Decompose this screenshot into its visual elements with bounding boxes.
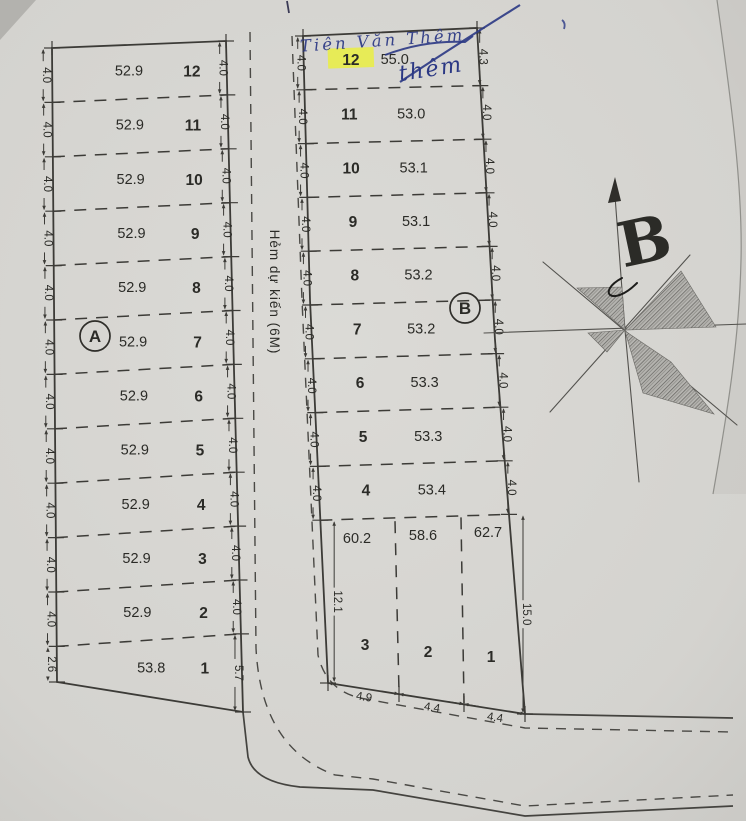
plot-area-label: 52.9 [117, 172, 145, 188]
plot-area-label: 52.9 [121, 443, 149, 459]
plot-area-label: 53.1 [400, 160, 428, 176]
dimension-label: 4.0 [298, 163, 310, 179]
dimension-label: 4.0 [221, 222, 233, 238]
dimension-label: 4.0 [229, 545, 241, 561]
scanned-survey-page: Hẻm dự kiến (6M) A B 52.91252.91152.9105… [0, 0, 746, 821]
dimension-label: 4.0 [483, 158, 495, 174]
plot-number: 7 [353, 321, 362, 338]
dimension-label: 4.0 [42, 285, 54, 301]
plot-area-label: 53.0 [397, 107, 425, 123]
dimension-label: 4.0 [44, 557, 56, 573]
dimension-label: 4.0 [43, 394, 55, 410]
dimension-label: 4.0 [227, 491, 239, 507]
dimension-label: 4.0 [219, 168, 231, 184]
plot-number: 5 [359, 429, 368, 446]
block-b-label: B [459, 299, 471, 318]
dimension-label: 4.0 [310, 485, 322, 501]
plot-number: 4 [362, 482, 371, 499]
plot-area-label: 58.6 [409, 528, 437, 544]
plot-number: 9 [191, 226, 200, 243]
dimension-label: 4.0 [299, 216, 311, 232]
dimension-label: 4.0 [305, 378, 317, 394]
dimension-label: 15.0 [520, 603, 532, 625]
plot-area-label: 53.1 [402, 214, 430, 230]
dimension-label: 4.0 [296, 109, 308, 125]
dimension-label: 4.0 [44, 502, 56, 518]
dimension-label: 4.0 [302, 324, 314, 340]
plot-number: 6 [194, 388, 203, 405]
plot-number: 10 [185, 172, 202, 189]
plot-area-label: 53.3 [414, 429, 442, 445]
dimension-label: 4.0 [223, 329, 235, 345]
paper [0, 0, 746, 821]
dimension-label: 4.0 [489, 265, 501, 281]
dimension-label: 4.0 [225, 383, 237, 399]
dimension-label: 4.0 [226, 437, 238, 453]
plot-number: 11 [341, 107, 358, 124]
plot-area-label: 60.2 [343, 531, 371, 547]
dimension-label: 4.0 [40, 67, 52, 83]
dimension-label: 4.4 [423, 701, 441, 715]
plot-number: 3 [361, 637, 370, 654]
dimension-label: 4.3 [477, 49, 489, 65]
dimension-label: 4.0 [295, 55, 307, 71]
plot-area-label: 52.9 [120, 388, 148, 404]
plot-area-label: 52.9 [123, 605, 151, 621]
dimension-label: 4.0 [308, 432, 320, 448]
plot-number: 10 [343, 160, 360, 177]
plot-number: 8 [351, 268, 360, 285]
dimension-label: 4.0 [505, 480, 517, 496]
plot-area-label: 52.9 [122, 497, 150, 513]
plot-number: 7 [193, 334, 202, 351]
dimension-label: 4.0 [42, 339, 54, 355]
dimension-label: 4.0 [300, 270, 312, 286]
dimension-label: 4.4 [486, 711, 504, 725]
dimension-label: 4.0 [217, 60, 229, 76]
dimension-label: 4.0 [222, 276, 234, 292]
plot-area-label: 53.4 [418, 482, 446, 498]
plot-area-label: 52.9 [115, 64, 143, 80]
dimension-label: 4.0 [501, 426, 513, 442]
alley-label: Hẻm dự kiến (6M) [267, 230, 282, 355]
dimension-label: 4.0 [41, 122, 53, 138]
plot-area-label: 62.7 [474, 525, 502, 541]
plot-area-label: 53.2 [407, 321, 435, 337]
plot-area-label: 52.9 [116, 118, 144, 134]
dimension-label: 4.0 [42, 230, 54, 246]
plot-number: 4 [197, 497, 206, 514]
plot-area-label: 52.9 [117, 226, 145, 242]
plot-number: 2 [199, 605, 208, 622]
dimension-label: 2.6 [45, 656, 57, 672]
plot-number: 8 [192, 280, 201, 297]
plot-area-label: 53.2 [404, 268, 432, 284]
plot-number: 12 [183, 64, 200, 81]
plot-number: 6 [356, 375, 365, 392]
dimension-label: 4.0 [45, 611, 57, 627]
plot-number: 1 [487, 649, 496, 666]
dimension-label: 4.9 [355, 690, 373, 704]
dimension-label: 5.7 [232, 665, 244, 681]
plot-number: 1 [201, 661, 210, 678]
dimension-label: 4.0 [41, 176, 53, 192]
dimension-label: 12.1 [331, 590, 343, 612]
block-a-label: A [89, 327, 101, 346]
dimension-label: 4.0 [218, 114, 230, 130]
dimension-label: 4.0 [486, 212, 498, 228]
paper-background [0, 0, 746, 821]
plot-number: 3 [198, 551, 207, 568]
plot-number: 12 [342, 52, 359, 69]
dimension-label: 4.0 [496, 372, 508, 388]
dimension-label: 4.0 [480, 104, 492, 120]
plot-number: 11 [185, 118, 202, 135]
plot-area-label: 52.9 [118, 280, 146, 296]
plot-area-label: 52.9 [119, 334, 147, 350]
plot-area-label: 53.8 [137, 661, 165, 677]
plot-number: 5 [196, 443, 205, 460]
plot-number: 2 [424, 644, 433, 661]
survey-sketch: Hẻm dự kiến (6M) A B 52.91252.91152.9105… [0, 0, 746, 821]
plot-area-label: 53.3 [411, 375, 439, 391]
plot-number: 9 [349, 214, 358, 231]
dimension-label: 4.0 [230, 599, 242, 615]
dimension-label: 4.0 [43, 448, 55, 464]
plot-area-label: 52.9 [122, 551, 150, 567]
